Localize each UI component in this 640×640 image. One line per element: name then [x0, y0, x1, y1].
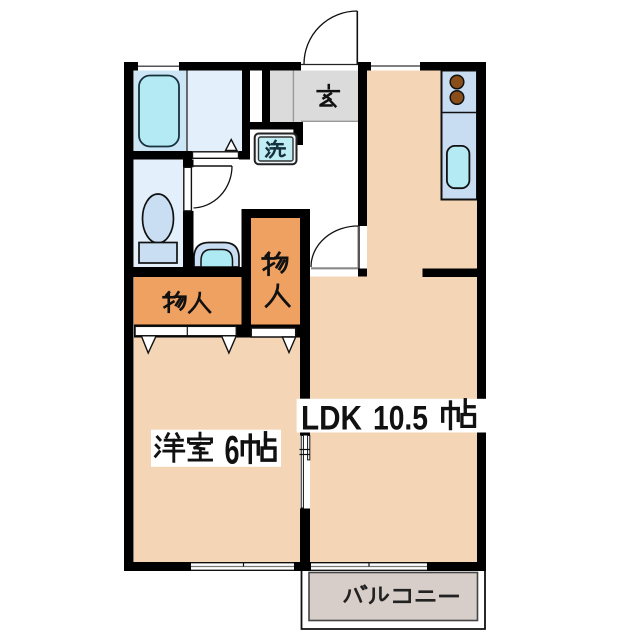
svg-text:10.5: 10.5 — [373, 400, 428, 438]
svg-text:6: 6 — [225, 429, 240, 473]
svg-text:LDK: LDK — [301, 400, 362, 438]
